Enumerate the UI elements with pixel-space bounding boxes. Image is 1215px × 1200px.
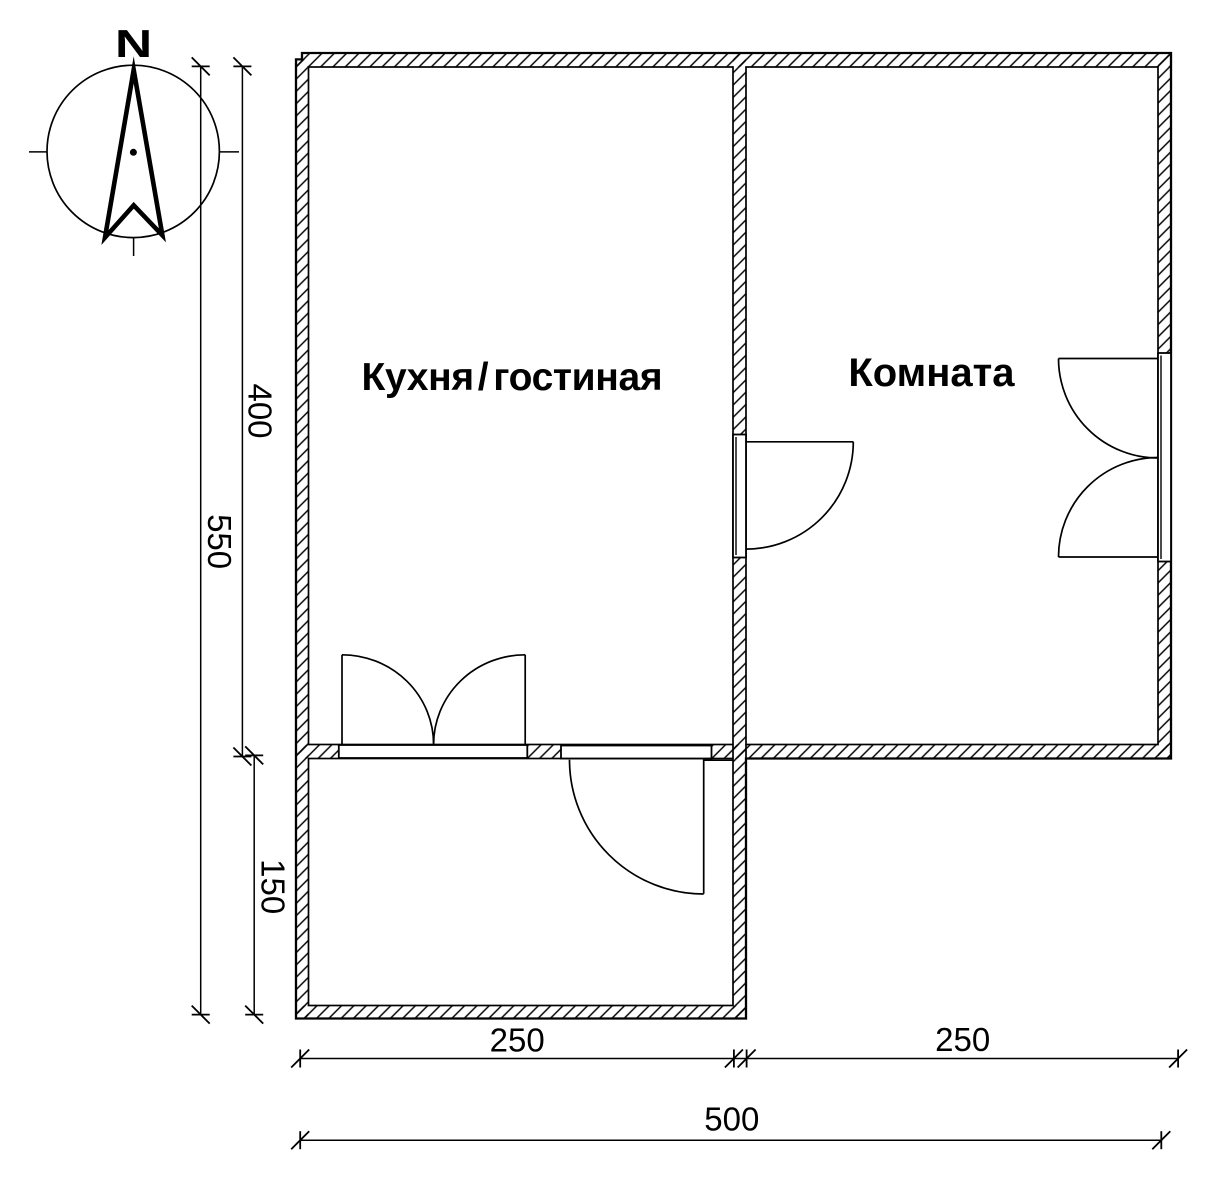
svg-text:Кухня/гостиная: Кухня/гостиная: [362, 356, 663, 399]
svg-text:150: 150: [255, 859, 292, 914]
svg-text:Комната: Комната: [848, 351, 1015, 395]
svg-text:N: N: [115, 22, 152, 66]
svg-text:250: 250: [935, 1021, 990, 1058]
svg-text:500: 500: [704, 1101, 759, 1138]
svg-text:400: 400: [242, 383, 279, 438]
svg-text:250: 250: [490, 1022, 545, 1059]
svg-text:550: 550: [201, 514, 238, 569]
